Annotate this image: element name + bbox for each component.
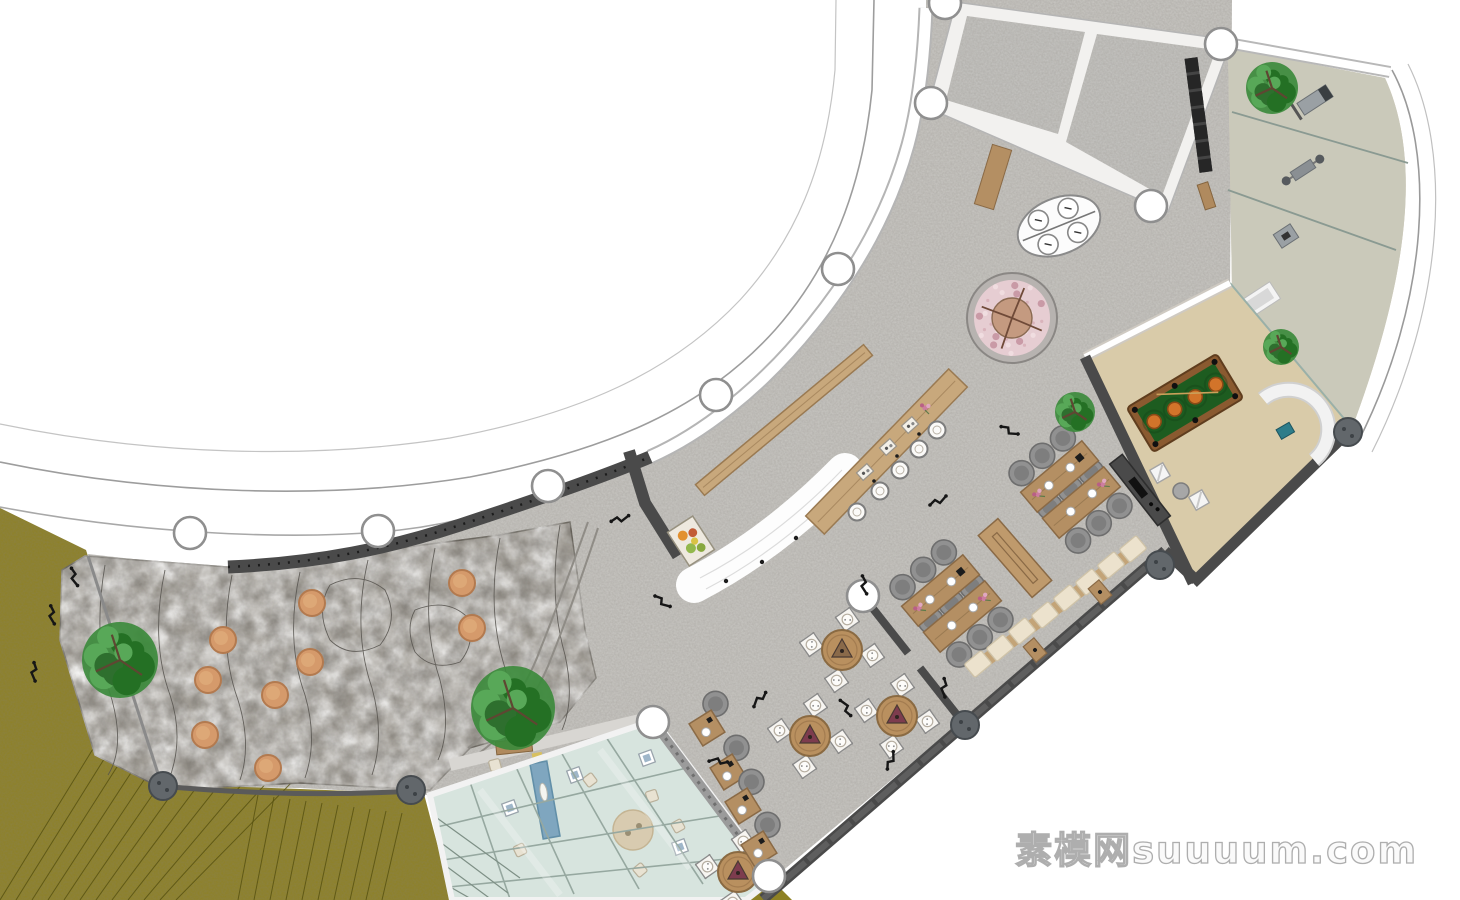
bollard-body: [951, 711, 979, 739]
bollard-body: [397, 776, 425, 804]
round-stool-orange: [449, 570, 475, 596]
column: [915, 87, 947, 119]
centerpiece-dot: [808, 735, 812, 739]
spot: [1154, 560, 1158, 564]
stone-bollard: [1334, 418, 1362, 446]
round-stool-orange: [195, 667, 221, 693]
blossom-speckle: [1011, 282, 1018, 289]
spot: [405, 785, 409, 789]
round-stool-orange: [459, 615, 485, 641]
blossom-speckle: [1030, 333, 1035, 338]
blossom-speckle: [992, 333, 999, 340]
stool-highlight: [301, 653, 315, 667]
column: [929, 0, 961, 19]
bar-stool: [892, 462, 909, 479]
spot: [165, 788, 169, 792]
stool-highlight: [453, 574, 467, 588]
column: [753, 860, 785, 892]
spot: [1162, 567, 1166, 571]
bar-stool: [929, 422, 946, 439]
stone-bollard: [397, 776, 425, 804]
column: [1135, 190, 1167, 222]
blossom-speckle: [999, 290, 1004, 295]
blossom-speckle: [1008, 351, 1013, 356]
lamp-head: [944, 494, 948, 498]
blossom-speckle: [1028, 285, 1033, 290]
napkin-dot: [895, 454, 899, 458]
round-stool-orange: [262, 682, 288, 708]
gray-stool: [1173, 483, 1189, 499]
bollard-body: [1146, 551, 1174, 579]
petal: [926, 404, 930, 408]
bollard-body: [149, 772, 177, 800]
round-stool-orange: [210, 627, 236, 653]
spot: [967, 727, 971, 731]
stool-highlight: [259, 759, 273, 773]
tree-icon: [82, 622, 158, 698]
centerpiece-dot: [840, 649, 844, 653]
round-stool-orange: [299, 590, 325, 616]
stool-highlight: [266, 686, 280, 700]
floor-plan-canvas: 素模网suuuum.com: [0, 0, 1460, 900]
blossom-speckle: [983, 328, 986, 331]
centerpiece-dot: [736, 871, 740, 875]
blossom-tree-planter: [967, 273, 1057, 363]
tree-icon: [1263, 329, 1299, 365]
column: [637, 706, 669, 738]
blossom-speckle: [986, 299, 989, 302]
blossom-speckle: [993, 284, 998, 289]
stone-bollard: [149, 772, 177, 800]
blossom-speckle: [979, 333, 984, 338]
column: [362, 515, 394, 547]
napkin-dot: [917, 432, 921, 436]
spot: [1342, 427, 1346, 431]
blossom-speckle: [1023, 344, 1026, 347]
column: [822, 253, 854, 285]
stool-highlight: [463, 619, 477, 633]
round-stool-orange: [192, 722, 218, 748]
round-stool-orange: [255, 755, 281, 781]
lamp-base: [928, 503, 932, 507]
floor-plan-svg: [0, 0, 1460, 900]
petal: [920, 403, 924, 407]
bollard-body: [1334, 418, 1362, 446]
spot: [959, 720, 963, 724]
blossom-speckle: [990, 341, 997, 348]
column: [700, 379, 732, 411]
round-stool-orange: [297, 649, 323, 675]
bar-stool: [911, 441, 928, 458]
tree-icon: [1246, 62, 1298, 114]
centerpiece-dot: [895, 715, 899, 719]
spot: [157, 781, 161, 785]
spot: [413, 792, 417, 796]
blossom-speckle: [1040, 320, 1043, 323]
bar-stool: [872, 483, 889, 500]
tree-icon: [471, 666, 555, 750]
column: [1205, 28, 1237, 60]
column: [532, 470, 564, 502]
stool-highlight: [196, 726, 210, 740]
stool-highlight: [214, 631, 228, 645]
blossom-speckle: [1013, 290, 1020, 297]
napkin-dot: [872, 479, 876, 483]
blossom-speckle: [1006, 342, 1011, 347]
spot: [1350, 434, 1354, 438]
column: [174, 517, 206, 549]
tree-icon: [1055, 392, 1095, 432]
stone-bollard: [951, 711, 979, 739]
stool-highlight: [199, 671, 213, 685]
blossom-speckle: [976, 313, 983, 320]
bar-stool: [849, 504, 866, 521]
blossom-speckle: [1016, 338, 1023, 345]
blossom-speckle: [983, 311, 988, 316]
stool-highlight: [303, 594, 317, 608]
blossom-speckle: [1038, 300, 1045, 307]
stone-bollard: [1146, 551, 1174, 579]
watermark: 素模网suuuum.com: [1015, 820, 1418, 874]
